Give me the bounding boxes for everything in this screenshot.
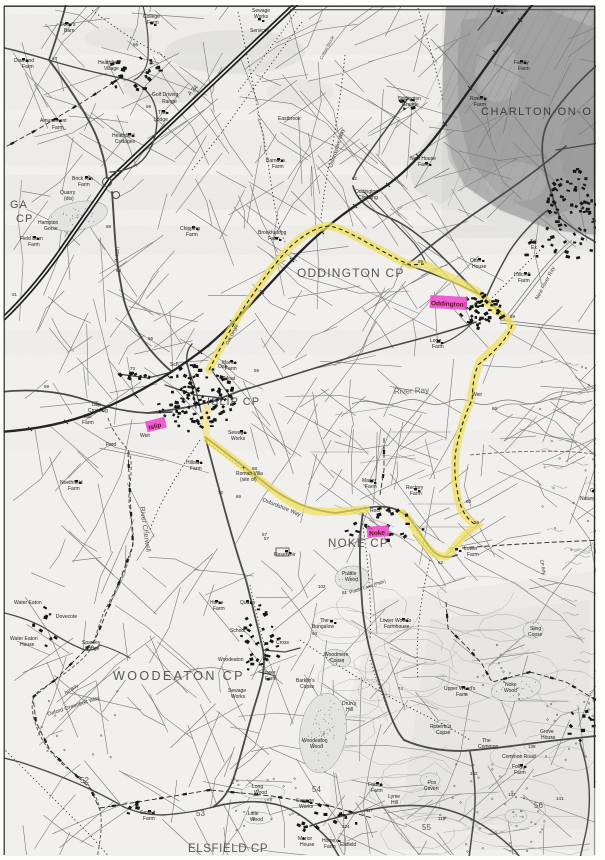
svg-text:Works: Works [299,804,314,810]
svg-text:Farmhouse: Farmhouse [384,624,410,630]
svg-text:67: 67 [52,56,58,61]
svg-text:Works: Works [254,14,269,20]
svg-text:137: 137 [508,792,516,797]
svg-text:Farm: Farm [268,236,280,242]
svg-text:Crossing: Crossing [88,408,108,414]
svg-text:Bungalow: Bungalow [312,624,334,630]
svg-text:Ford: Ford [106,442,117,448]
svg-text:Crossing: Crossing [358,195,378,201]
svg-text:ELSFIELD CP: ELSFIELD CP [188,843,268,855]
svg-text:Services: Services [250,28,270,34]
svg-text:Dovecote: Dovecote [56,614,77,620]
svg-text:Barn: Barn [64,28,75,34]
svg-text:Farm: Farm [147,20,159,26]
svg-text:Farm: Farm [78,182,90,188]
svg-text:74: 74 [398,686,404,691]
svg-text:117: 117 [366,808,374,813]
svg-text:Copse: Copse [528,632,543,638]
svg-text:69: 69 [236,494,242,499]
svg-text:Copse: Copse [436,730,451,736]
svg-text:Farm: Farm [467,552,479,558]
svg-text:Amusement: Amusement [40,118,67,124]
svg-text:Farm: Farm [143,816,155,822]
svg-text:59: 59 [474,520,480,525]
svg-text:+: + [242,466,246,472]
svg-text:Woodeaton: Woodeaton [218,657,244,663]
svg-text:Farm: Farm [28,242,40,248]
svg-text:Ex: Ex [531,245,537,251]
svg-text:Wood: Wood [345,577,358,583]
svg-text:64: 64 [114,172,120,177]
svg-text:Copse: Copse [300,684,315,690]
svg-text:Hill: Hill [391,800,398,806]
svg-text:Hill: Hill [346,707,353,713]
svg-text:61: 61 [12,292,18,297]
svg-text:CHARLTON-ON-O: CHARLTON-ON-O [481,106,592,118]
svg-text:Grange: Grange [402,102,419,108]
svg-text:59: 59 [44,384,50,389]
svg-text:Farm: Farm [324,844,336,850]
svg-text:Farm: Farm [190,466,202,472]
svg-text:Sch: Sch [170,362,179,368]
svg-text:69: 69 [146,104,152,109]
svg-text:Farm: Farm [496,8,508,14]
svg-text:Farm: Farm [432,344,444,350]
svg-text:River Ray: River Ray [394,386,429,396]
svg-text:97: 97 [262,532,268,537]
svg-text:House: House [472,264,487,270]
svg-text:Bridge: Bridge [85,646,100,652]
svg-text:Works: Works [231,694,246,700]
svg-text:59: 59 [510,314,516,319]
svg-text:141: 141 [556,796,564,801]
svg-text:Range: Range [162,99,177,105]
svg-text:Farm: Farm [514,770,526,776]
svg-text:Farm: Farm [371,788,383,794]
svg-text:81: 81 [342,590,348,595]
svg-text:NOKE CP: NOKE CP [328,538,389,550]
svg-text:Farm: Farm [186,232,198,238]
svg-text:Weir: Weir [472,392,483,398]
svg-text:Farm: Farm [213,606,225,612]
svg-text:WOODEATON CP: WOODEATON CP [113,669,245,683]
svg-text:138: 138 [528,744,536,749]
svg-text:60: 60 [466,499,472,504]
svg-text:62: 62 [438,560,444,565]
svg-text:Cross: Cross [276,640,290,646]
svg-text:Farm: Farm [410,491,422,497]
svg-text:Farm: Farm [272,164,284,170]
svg-text:Wood: Wood [504,688,517,694]
svg-text:GA: GA [10,199,28,211]
svg-text:ODDINGTON CP: ODDINGTON CP [297,266,405,280]
svg-text:Elsfield: Elsfield [340,842,356,848]
svg-text:Wood: Wood [254,790,267,796]
svg-text:CP: CP [16,213,33,225]
svg-text:Farm: Farm [365,484,377,490]
svg-text:Covert: Covert [424,786,439,792]
svg-text:68: 68 [106,224,112,229]
svg-text:118: 118 [438,816,446,821]
svg-text:Copse: Copse [330,658,345,664]
svg-text:House: House [541,735,556,741]
svg-text:63: 63 [116,268,122,273]
svg-text:(site of): (site of) [240,477,257,483]
svg-text:Farm: Farm [22,64,34,70]
svg-text:Moat: Moat [224,376,236,382]
svg-text:(dis): (dis) [64,196,74,202]
svg-text:Gorse: Gorse [44,226,58,232]
svg-text:Common Road: Common Road [502,754,536,760]
svg-text:House: House [300,842,315,848]
svg-text:Reservoir: Reservoir [274,552,296,558]
svg-text:124: 124 [342,824,350,829]
svg-text:Cottages: Cottages [115,139,136,145]
svg-text:54: 54 [312,785,321,794]
svg-text:Quarry: Quarry [240,600,256,606]
svg-text:Wood: Wood [250,817,263,823]
svg-text:Weir: Weir [140,433,151,439]
svg-text:Farm: Farm [474,102,486,108]
svg-text:64: 64 [312,631,318,636]
svg-text:Wood: Wood [310,744,323,750]
svg-text:58: 58 [252,466,258,471]
svg-text:Farm: Farm [456,692,468,698]
svg-text:72: 72 [218,490,224,495]
svg-text:Oak: Oak [218,364,228,370]
svg-text:Farm: Farm [265,676,277,682]
svg-text:53: 53 [196,809,205,818]
svg-text:59: 59 [254,368,260,373]
svg-text:66: 66 [133,42,139,47]
svg-text:Eastbrook: Eastbrook [278,116,301,122]
svg-text:62: 62 [352,176,358,181]
svg-text:73: 73 [130,366,136,371]
svg-text:55: 55 [422,823,431,832]
svg-text:Farm: Farm [68,486,80,492]
svg-text:Lodge: Lodge [154,117,168,123]
svg-text:Nature: Nature [580,496,595,502]
svg-text:Noke: Noke [369,529,386,537]
svg-text:Farm: Farm [518,66,530,72]
svg-text:52: 52 [80,776,89,785]
svg-text:56: 56 [534,801,543,810]
svg-text:Village: Village [104,66,119,72]
svg-text:Farm: Farm [418,162,430,168]
svg-text:60: 60 [492,406,498,411]
svg-text:Farm: Farm [82,420,94,426]
svg-text:The: The [158,110,167,116]
svg-text:59: 59 [418,259,424,264]
svg-text:Common: Common [478,744,499,750]
svg-text:Farm: Farm [52,125,64,131]
svg-text:Recr: Recr [370,508,381,514]
svg-text:Works: Works [231,436,246,442]
svg-text:School: School [230,628,245,634]
svg-text:Golf Driving: Golf Driving [152,92,178,98]
svg-text:102: 102 [318,584,326,589]
svg-text:66: 66 [148,336,154,341]
svg-text:Water Eaton: Water Eaton [14,600,42,606]
svg-text:ISLIP CP: ISLIP CP [207,396,260,408]
svg-text:Farm: Farm [518,278,530,284]
svg-text:House: House [20,642,35,648]
svg-text:132: 132 [470,771,478,776]
